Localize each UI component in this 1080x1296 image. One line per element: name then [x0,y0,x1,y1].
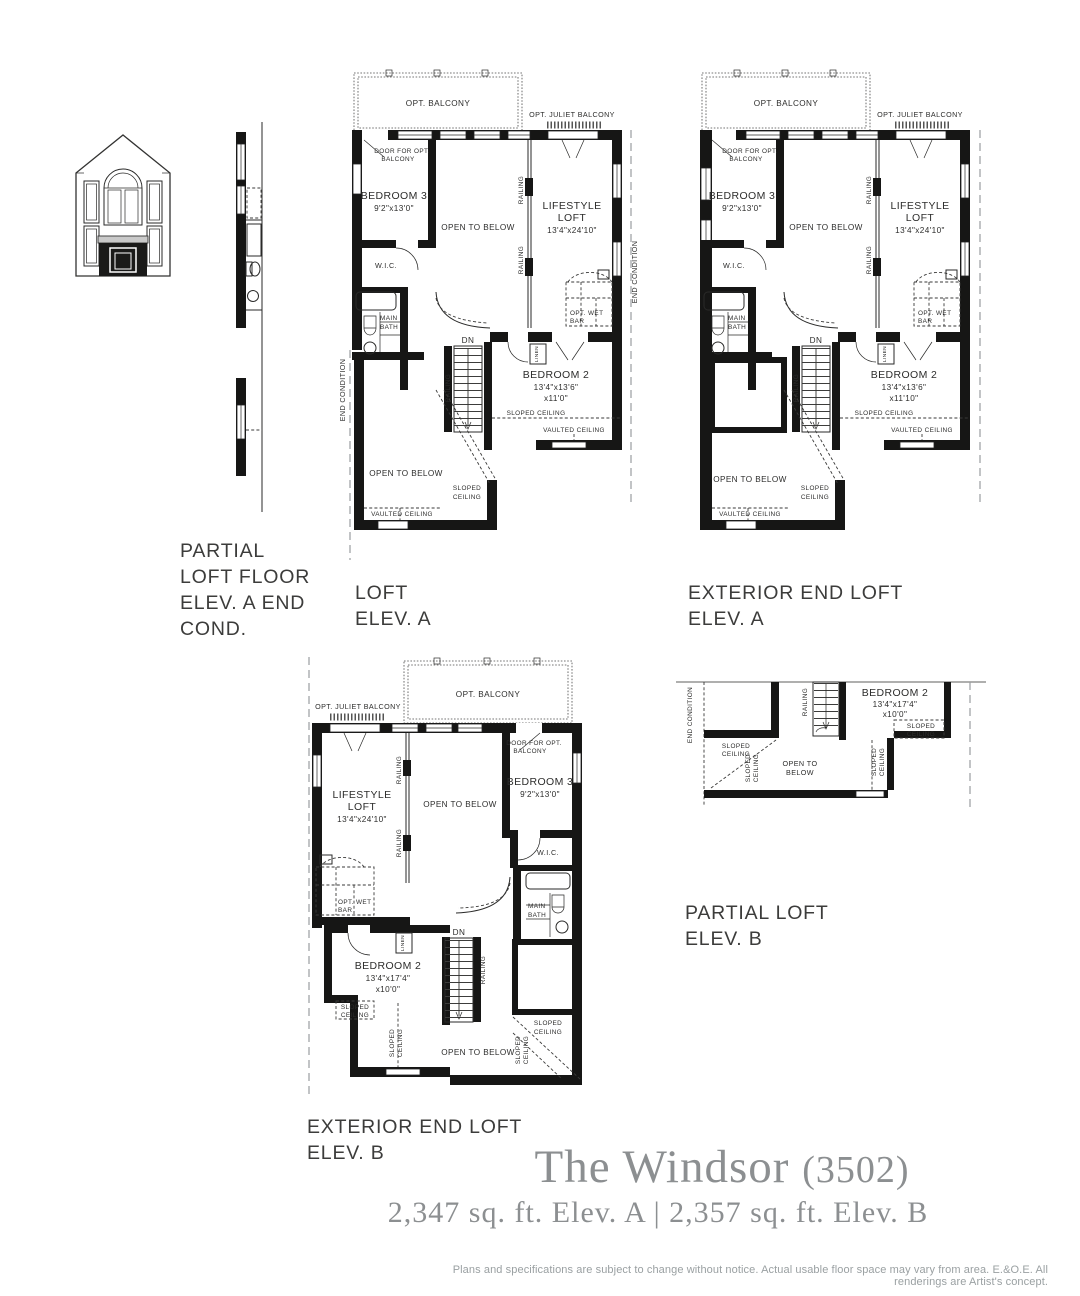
open-to-below-1: OPEN TO [783,759,818,768]
sloped-ceiling-br-2: CEILING [534,1029,562,1036]
partial-a-caption-line3: ELEV. A END [180,590,310,616]
loft-a-caption-line2: ELEV. A [355,606,431,632]
bedroom2-height: x11'0" [544,394,568,403]
sloped-ceiling-label: SLOPED CEILING [507,410,566,417]
sloped-ceiling-box-1: SLOPED [341,1004,369,1011]
opt-wet-bar: OPT. WET BAR [316,855,374,915]
partial-b-caption: PARTIAL LOFT ELEV. B [685,900,829,952]
end-condition-label: END CONDITION [687,687,694,743]
partial-a-caption-line2: LOFT FLOOR [180,564,310,590]
ext-b-caption-line1: EXTERIOR END LOFT [307,1114,522,1140]
sloped-ceiling-lower-1: SLOPED [453,485,481,492]
main-bath-label-1: MAIN [528,903,546,910]
ext-a-caption: EXTERIOR END LOFT ELEV. A [688,580,903,632]
bedroom3-label: BEDROOM 3 [361,190,428,202]
wic-label: W.I.C. [375,261,397,270]
door-opt-balcony-2: BALCONY [729,156,763,163]
main-bath-label-1: MAIN [380,315,398,322]
railing-label: RAILING [866,246,873,274]
loft-a-caption: LOFT ELEV. A [355,580,431,632]
opt-balcony-label: OPT. BALCONY [406,99,471,108]
opt-wet-bar-label-2: BAR [338,907,352,914]
opt-juliet-balcony: OPT. JULIET BALCONY [529,110,615,125]
vaulted-ceiling-lower: VAULTED CEILING [371,511,433,518]
opt-wet-bar-label-2: BAR [570,318,584,325]
lifestyle-loft-label-1: LIFESTYLE [332,789,391,801]
bedroom2-height: x10'0" [376,985,401,994]
sloped-ceiling-rv-1: SLOPED [871,748,878,776]
lifestyle-loft-label-1: LIFESTYLE [542,200,601,212]
opt-wet-bar: OPT. WET BAR [914,270,960,326]
open-to-below-label: OPEN TO BELOW [441,223,515,232]
bedroom3-dims: 9'2"x13'0" [722,204,762,213]
stairs-railing-label: RAILING [802,688,809,716]
bedroom2-label: BEDROOM 2 [871,369,938,381]
stairs-railing-label: RAILING [793,374,800,402]
front-elevation-thumbnail [68,126,178,281]
railing-label: RAILING [518,176,525,204]
sloped-ceiling-lower-2: CEILING [801,494,829,501]
main-bath-label-1: MAIN [728,315,746,322]
sloped-ceiling-leftv-1: SLOPED [745,754,752,782]
ext-a-caption-line1: EXTERIOR END LOFT [688,580,903,606]
opt-juliet-balcony: OPT. JULIET BALCONY [877,110,963,125]
bedroom2-dims: 13'4"x17'4" [873,700,918,709]
partial-a-caption: PARTIAL LOFT FLOOR ELEV. A END COND. [180,538,310,642]
sloped-ceiling-box-2: CEILING [341,1012,369,1019]
open-to-below-lower-label: OPEN TO BELOW [369,469,443,478]
bedroom2-height: x11'10" [890,394,919,403]
open-to-below-label: OPEN TO BELOW [789,223,863,232]
opt-wet-bar-label-2: BAR [918,318,932,325]
railing: RAILING RAILING [866,140,881,328]
sloped-ceiling-leftv-2: CEILING [753,754,760,782]
lifestyle-loft-dims: 13'4"x24'10" [337,815,387,824]
vaulted-ceiling-label: VAULTED CEILING [891,427,953,434]
open-to-below-label: OPEN TO BELOW [423,800,497,809]
opt-balcony: OPT. BALCONY [702,70,870,132]
vaulted-ceiling-label: VAULTED CEILING [543,427,605,434]
partial-a-caption-line1: PARTIAL [180,538,310,564]
railing: RAILING RAILING [396,733,411,883]
stairs-dn-label: DN [453,928,466,937]
opt-balcony-label: OPT. BALCONY [754,99,819,108]
stairs-dn-label: DN [462,336,475,345]
partial-b-caption-line1: PARTIAL LOFT [685,900,829,926]
plan-name: The Windsor [534,1141,789,1193]
wic-label: W.I.C. [537,848,559,857]
loft-a-caption-line1: LOFT [355,580,431,606]
bedroom3-dims: 9'2"x13'0" [520,790,560,799]
open-to-below-lower-label: OPEN TO BELOW [441,1048,515,1057]
door-opt-balcony-1: DOOR FOR OPT. [722,148,778,155]
plan-model-number: (3502) [802,1149,909,1191]
bedroom2-height: x10'0" [883,710,908,719]
opt-balcony: OPT. BALCONY [354,70,522,132]
opt-juliet-balcony-label: OPT. JULIET BALCONY [877,110,963,119]
bedroom3-label: BEDROOM 3 [709,190,776,202]
opt-wet-bar: OPT. WET BAR [566,270,612,326]
plan-exterior-end-loft-elev-b: OPT. BALCONY OPT. JULIET BALCONY [300,655,605,1105]
entry-porch-icon [98,236,148,276]
sloped-ceiling-lower-2: CEILING [453,494,481,501]
lifestyle-loft-dims: 13'4"x24'10" [547,226,597,235]
sloped-ceiling-vert-2: CEILING [397,1029,404,1057]
plan-partial-loft-elev-b: END CONDITION SLOPED CEILING SLOPED CEIL… [676,658,986,818]
railing-label: RAILING [518,246,525,274]
lifestyle-loft-label-1: LIFESTYLE [890,200,949,212]
end-condition-label-left: END CONDITION [338,359,347,422]
lifestyle-loft-dims: 13'4"x24'10" [895,226,945,235]
bedroom2-dims: 13'4"x13'6" [882,383,927,392]
vaulted-ceiling-lower: VAULTED CEILING [719,511,781,518]
opt-juliet-balcony-label: OPT. JULIET BALCONY [315,702,401,711]
opt-balcony: OPT. BALCONY [404,658,572,723]
bedroom2-label: BEDROOM 2 [523,369,590,381]
partial-loft-a-strip [222,120,272,520]
floor-plan-sheet: OPT. BALCONY OPT. JULIET BALCONY END CON… [0,0,1080,1296]
plan-loft-elev-a: OPT. BALCONY OPT. JULIET BALCONY END CON… [340,60,640,572]
open-to-below-2: BELOW [786,768,814,777]
sloped-ceiling-right-2: CEILING [907,731,935,738]
plan-title: The Windsor (3502) [397,1140,1047,1194]
partial-b-caption-line2: ELEV. B [685,926,829,952]
stairs-dn-label: DN [810,336,823,345]
bedroom3-label: BEDROOM 3 [507,776,574,788]
railing-label: RAILING [396,829,403,857]
linen-label: LINEN [400,935,406,951]
wic-label: W.I.C. [723,261,745,270]
opt-juliet-balcony: OPT. JULIET BALCONY [315,702,401,717]
strip-upper-wall [236,132,262,328]
sloped-ceiling-rv-2: CEILING [879,748,886,776]
bedroom2-label: BEDROOM 2 [355,960,422,972]
bedroom2-dims: 13'4"x17'4" [366,974,411,983]
ext-a-caption-line2: ELEV. A [688,606,903,632]
stairs: RAILING [802,682,839,736]
end-condition-label-right: END CONDITION [630,241,639,304]
opt-wet-bar-label-1: OPT. WET [570,310,603,317]
door-opt-balcony-2: BALCONY [513,748,547,755]
main-bath-label-2: BATH [728,324,746,331]
opt-juliet-balcony-label: OPT. JULIET BALCONY [529,110,615,119]
lifestyle-loft-label-2: LOFT [906,212,935,224]
linen-label: LINEN [882,346,888,362]
sloped-ceiling-br-1: SLOPED [534,1020,562,1027]
opt-wet-bar-label-1: OPT. WET [338,899,371,906]
main-bath-label-2: BATH [528,912,546,919]
plan-areas: 2,347 sq. ft. Elev. A | 2,357 sq. ft. El… [333,1196,983,1230]
sloped-ceiling-brv-2: CEILING [523,1036,530,1064]
bedroom2-dims: 13'4"x13'6" [534,383,579,392]
sloped-ceiling-label: SLOPED CEILING [855,410,914,417]
door-opt-balcony-2: BALCONY [381,156,415,163]
stairs-railing-label: RAILING [480,956,487,984]
open-to-below-lower-label: OPEN TO BELOW [713,475,787,484]
sloped-ceiling-brv-1: SLOPED [515,1036,522,1064]
sloped-ceiling-right-1: SLOPED [907,723,935,730]
partial-a-caption-line4: COND. [180,616,310,642]
railing-label: RAILING [396,756,403,784]
plan-exterior-end-loft-elev-a: OPT. BALCONY OPT. JULIET BALCONY [688,60,988,572]
door-opt-balcony-1: DOOR FOR OPT. [374,148,430,155]
opt-balcony-label: OPT. BALCONY [456,690,521,699]
sloped-ceiling-lower-1: SLOPED [801,485,829,492]
railing-label: RAILING [866,176,873,204]
sloped-ceiling-left-1: SLOPED [722,743,750,750]
strip-lower-wall [236,378,262,476]
railing: RAILING RAILING [518,140,533,328]
lifestyle-loft-label-2: LOFT [348,801,377,813]
linen-label: LINEN [534,346,540,362]
stairs-railing-label: RAILING [445,374,452,402]
lifestyle-loft-label-2: LOFT [558,212,587,224]
bedroom2-label: BEDROOM 2 [862,687,929,699]
bedroom3-dims: 9'2"x13'0" [374,204,414,213]
door-opt-balcony-1: DOOR FOR OPT. [506,740,562,747]
disclaimer-text: Plans and specifications are subject to … [408,1264,1048,1288]
sloped-ceiling-vert-1: SLOPED [389,1029,396,1057]
opt-wet-bar-label-1: OPT. WET [918,310,951,317]
main-bath-label-2: BATH [380,324,398,331]
